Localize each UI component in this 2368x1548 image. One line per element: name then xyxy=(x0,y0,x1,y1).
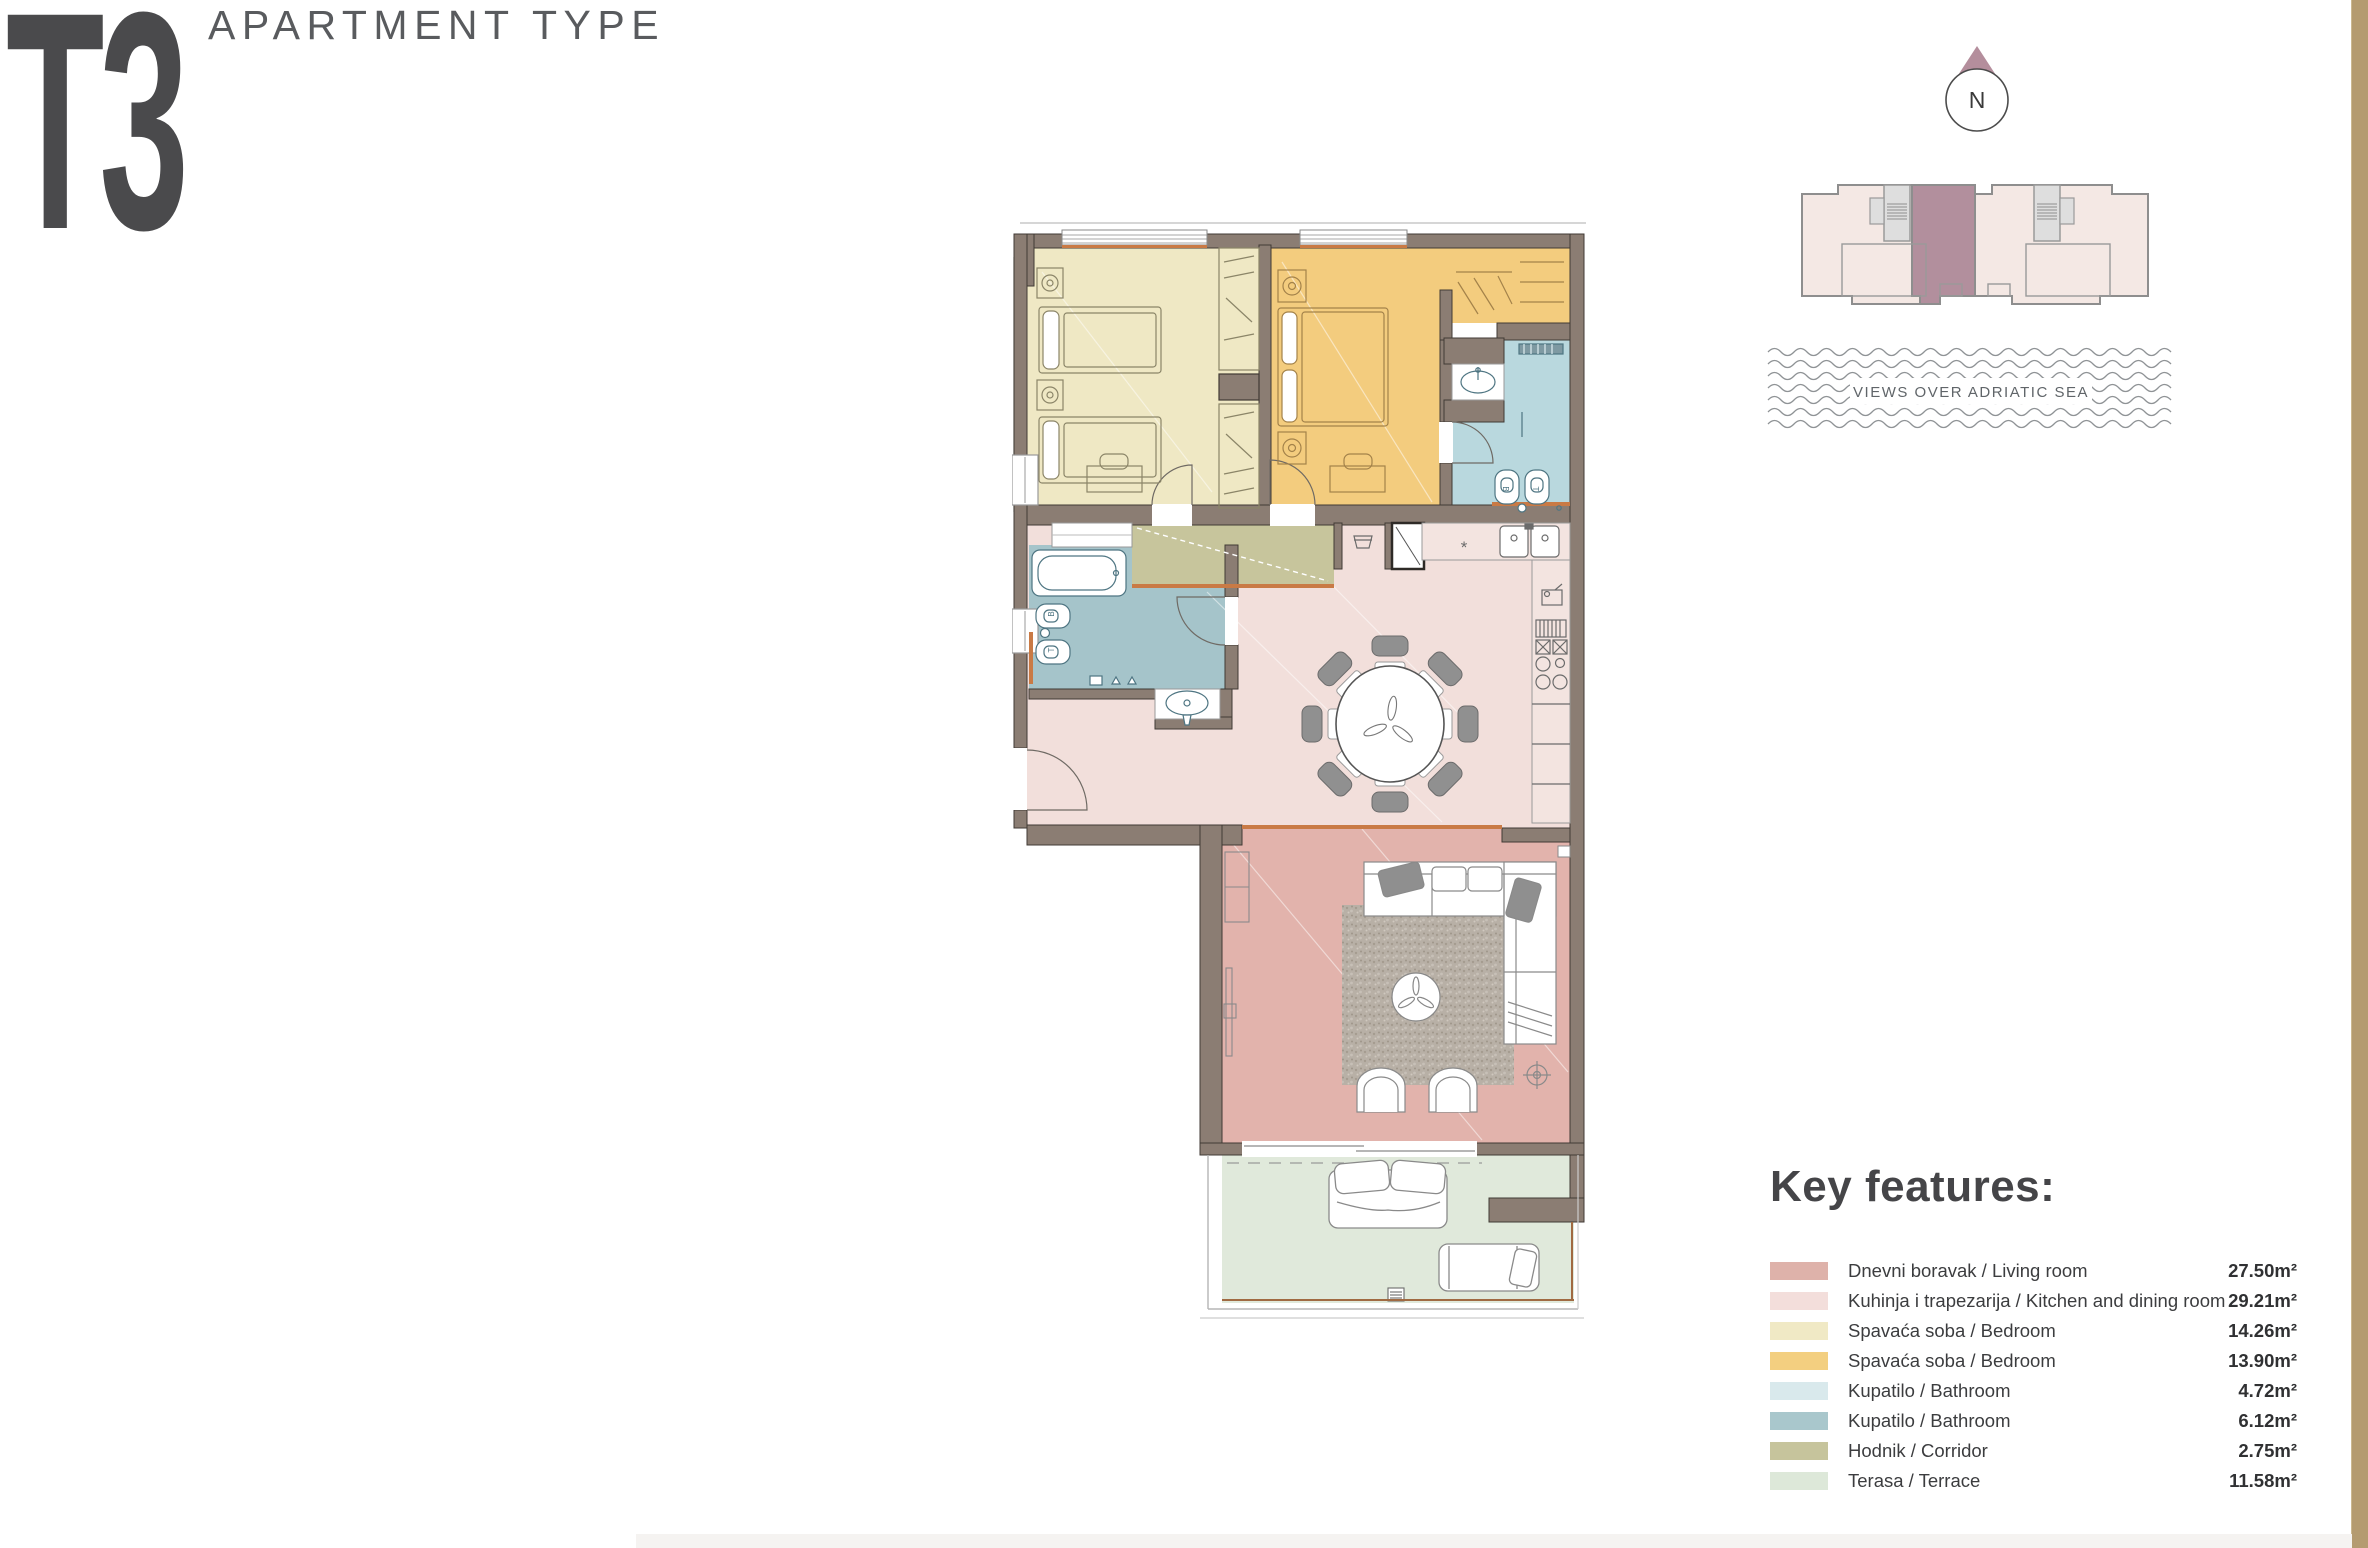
legend-area-value: 4.72m² xyxy=(2238,1380,2297,1402)
towel-radiator xyxy=(1519,344,1563,354)
key-features-list: Dnevni boravak / Living room27.50m²Kuhin… xyxy=(1770,1256,2297,1496)
legend-label: Spavaća soba / Bedroom xyxy=(1848,1320,2056,1342)
legend-area-value: 2.75m² xyxy=(2238,1440,2297,1462)
corner-niche xyxy=(1558,846,1570,857)
bidet: B xyxy=(1036,604,1070,628)
legend-label: Dnevni boravak / Living room xyxy=(1848,1260,2088,1282)
door-gap-bathroom1 xyxy=(1439,422,1453,463)
legend-area-value: 13.90m² xyxy=(2228,1350,2297,1372)
page-subtitle: APARTMENT TYPE xyxy=(208,2,665,49)
bidet: B xyxy=(1495,470,1519,504)
legend-swatch xyxy=(1770,1442,1828,1460)
legend-swatch xyxy=(1770,1412,1828,1430)
outdoor-sofa xyxy=(1329,1160,1447,1228)
legend-area-value: 27.50m² xyxy=(2228,1260,2297,1282)
legend-label: Kuhinja i trapezarija / Kitchen and dini… xyxy=(1848,1290,2225,1312)
key-features: Key features: Dnevni boravak / Living ro… xyxy=(1770,1162,2297,1496)
door-gap-bathroom2 xyxy=(1225,597,1238,645)
svg-text:B: B xyxy=(1047,611,1056,616)
legend-row: Spavaća soba / Bedroom14.26m² xyxy=(1770,1316,2297,1346)
sliding-door-terrace xyxy=(1242,1141,1477,1157)
legend-area-value: 11.58m² xyxy=(2229,1470,2297,1492)
legend-row: Kupatilo / Bathroom4.72m² xyxy=(1770,1376,2297,1406)
legend-swatch xyxy=(1770,1262,1828,1280)
legend-row: Dnevni boravak / Living room27.50m² xyxy=(1770,1256,2297,1286)
legend-label: Kupatilo / Bathroom xyxy=(1848,1410,2010,1432)
page-edge-strip xyxy=(2351,0,2368,1548)
door-gap-bedroom1 xyxy=(1152,504,1192,526)
legend-label: Hodnik / Corridor xyxy=(1848,1440,1988,1462)
building-key-plan xyxy=(1790,176,2160,316)
sun-lounger xyxy=(1439,1244,1539,1291)
page-bottom-strip xyxy=(636,1534,2352,1548)
legend-row: Terasa / Terrace11.58m² xyxy=(1770,1466,2297,1496)
legend-swatch xyxy=(1770,1322,1828,1340)
page-title: T3 xyxy=(6,0,184,276)
door-gap-entry xyxy=(1013,748,1027,810)
legend-area-value: 14.26m² xyxy=(2228,1320,2297,1342)
hob-symbol: * xyxy=(1461,538,1468,557)
page: { "header": { "title": "T3", "subtitle":… xyxy=(0,0,2368,1548)
compass-label: N xyxy=(1969,87,1986,113)
sea-banner: VIEWS OVER ADRIATIC SEA xyxy=(1764,344,2192,430)
legend-label: Terasa / Terrace xyxy=(1848,1470,1980,1492)
legend-area-value: 29.21m² xyxy=(2228,1290,2297,1312)
legend-swatch xyxy=(1770,1382,1828,1400)
dining-set xyxy=(1302,636,1478,812)
door-gap-bedroom2 xyxy=(1270,504,1315,526)
legend-swatch xyxy=(1770,1292,1828,1310)
sea-label: VIEWS OVER ADRIATIC SEA xyxy=(1853,384,2089,401)
legend-row: Hodnik / Corridor2.75m² xyxy=(1770,1436,2297,1466)
legend-swatch xyxy=(1770,1352,1828,1370)
svg-text:B: B xyxy=(1501,486,1510,491)
svg-text:T: T xyxy=(1047,647,1056,652)
compass: N xyxy=(1935,44,2019,136)
svg-text:T: T xyxy=(1531,487,1540,492)
legend-area-value: 6.12m² xyxy=(2238,1410,2297,1432)
legend-row: Kupatilo / Bathroom6.12m² xyxy=(1770,1406,2297,1436)
legend-row: Spavaća soba / Bedroom13.90m² xyxy=(1770,1346,2297,1376)
toilet: T xyxy=(1036,640,1070,664)
toilet: T xyxy=(1525,470,1549,504)
dining-table xyxy=(1336,666,1444,782)
key-features-heading: Key features: xyxy=(1770,1162,2297,1212)
legend-row: Kuhinja i trapezarija / Kitchen and dini… xyxy=(1770,1286,2297,1316)
legend-swatch xyxy=(1770,1472,1828,1490)
legend-label: Spavaća soba / Bedroom xyxy=(1848,1350,2056,1372)
legend-label: Kupatilo / Bathroom xyxy=(1848,1380,2010,1402)
floor-plan: B T B T xyxy=(1012,212,1600,1340)
tv-niche xyxy=(1219,374,1259,400)
